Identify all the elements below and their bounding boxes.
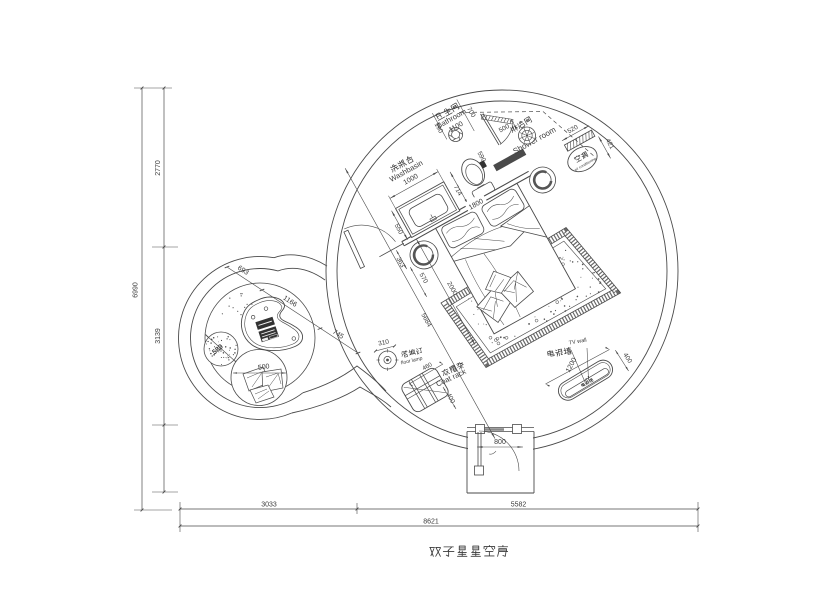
- svg-text:3139: 3139: [155, 328, 162, 344]
- svg-text:800: 800: [494, 439, 506, 446]
- svg-text:6990: 6990: [133, 282, 140, 298]
- svg-text:2770: 2770: [155, 160, 162, 176]
- svg-text:3033: 3033: [261, 502, 277, 509]
- svg-text:8621: 8621: [423, 519, 439, 526]
- svg-text:5582: 5582: [511, 502, 527, 509]
